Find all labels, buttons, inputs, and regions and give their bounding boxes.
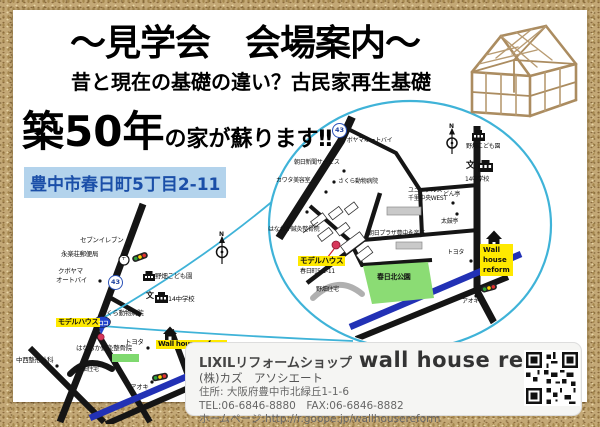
poi-label-hanaoka: はなおか鍼灸整骨院: [76, 345, 132, 352]
poi-label-seven-eleven: セブンイレブン: [80, 237, 123, 244]
school-mark: 文: [466, 162, 475, 171]
poi-label-kodomoen: 野畑こども園: [466, 144, 500, 150]
poi-label-uni-arsu-1: ユニ・アルス: [408, 188, 442, 194]
poi-label-asahi-plaza: 朝日プラザ豊中永楽荘: [368, 231, 425, 237]
poi-label-toyota: トヨタ: [447, 250, 464, 256]
poi-label-kuboyama-1: クボヤマ: [58, 268, 83, 275]
model-house-label: モデルハウス: [56, 318, 100, 327]
model-house-address: 春日町5-2-11: [300, 269, 335, 275]
venue-address-badge: 豊中市春日町5丁目2-11: [24, 167, 226, 198]
catchphrase-big: 築50年: [22, 98, 164, 159]
post-mark: 〒: [121, 257, 126, 263]
shop-type: LIXILリフォームショップ: [199, 352, 352, 371]
page-title: 〜見学会 会場案内〜: [16, 14, 474, 66]
route-43-badge: 43: [332, 123, 347, 138]
flyer: { "header": { "title": "〜見学会 会場案内〜", "su…: [0, 0, 600, 424]
poi-label-kuboyama-2: オートバイ: [56, 277, 87, 284]
poi-label-sakura-vet: さくら動物病院: [100, 310, 143, 317]
poi-label-kasuga-park: 春日北公園: [377, 274, 411, 281]
school-mark: 文: [146, 292, 154, 300]
poi-label-toyota: トヨタ: [125, 339, 144, 346]
poi-label-post-office: 永楽荘郵便局: [61, 251, 98, 258]
wall-line-2: house: [483, 255, 510, 265]
wall-house-reform-label: Wall house reform: [480, 244, 513, 276]
compass-n-label: N: [219, 231, 224, 238]
model-house-label: モデルハウス: [298, 256, 345, 266]
poi-label-hanaoka: はなおか鍼灸整骨院: [268, 227, 319, 233]
poi-label-asahi-news: 朝日新聞サービス: [294, 160, 340, 166]
poi-label-nobatake-jutaku: 野畑住宅: [76, 367, 99, 373]
shop-info-box: LIXILリフォームショップ wall house reform (株)カズ ア…: [185, 342, 582, 416]
catchphrase-small: の家が蘇ります‼: [164, 121, 332, 153]
wall-line-3: reform: [483, 265, 510, 275]
here-balloon-label: ココ: [95, 319, 111, 327]
poi-label-junior-high: 14中学校: [465, 177, 489, 183]
wall-line-1: Wall: [483, 245, 510, 255]
catchphrase: 築50年の家が蘇ります‼: [22, 98, 332, 159]
poi-label-aoki: アオキ: [130, 384, 149, 391]
page-subtitle: 昔と現在の基礎の違い？古民家再生基礎: [28, 66, 474, 95]
qr-code: [524, 350, 580, 406]
compass-n-label: N: [449, 123, 454, 130]
shop-homepage: ホームページ:http://r.goope.jp/wallhousereform: [199, 413, 581, 427]
route-43-badge: 43: [108, 275, 123, 290]
poi-label-nobatake-jutaku: 野畑住宅: [316, 287, 339, 293]
poi-label-uni-arsu-2: 千里中央WEST: [408, 196, 447, 202]
poi-label-aoki: アオキ: [462, 299, 479, 305]
poi-label-don-tei: どん亭: [443, 192, 460, 198]
poi-label-junior-high: 14中学校: [168, 296, 194, 303]
poi-label-taiko-tei: 太鼓亭: [441, 219, 458, 225]
poi-label-kawata: カワタ美容室: [276, 178, 310, 184]
poi-label-kodomoen: 野畑こども園: [155, 273, 192, 280]
poi-label-sakura-vet: さくら動物病院: [338, 179, 378, 185]
poi-label-kuboyama: クボヤマオートバイ: [341, 138, 392, 144]
poi-label-nakanishi: 中西整形外科: [16, 357, 53, 364]
